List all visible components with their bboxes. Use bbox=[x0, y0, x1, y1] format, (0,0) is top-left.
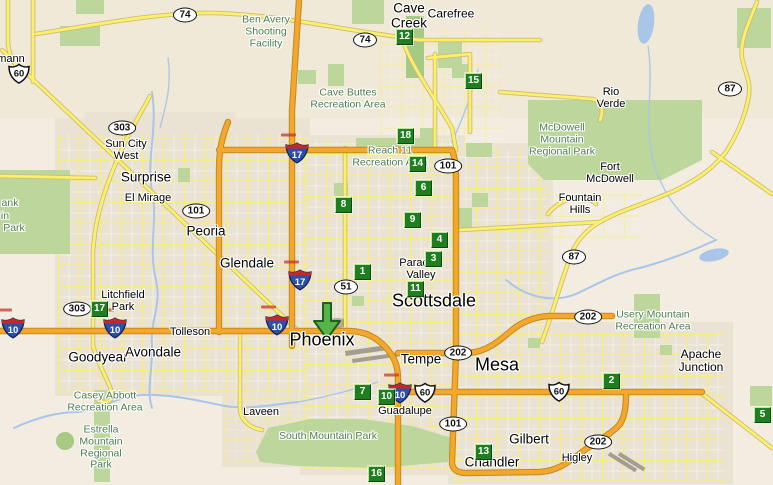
map-viewport[interactable]: mannSun City WestSurpriseEl MiragePeoria… bbox=[0, 0, 773, 485]
route-shield-101: 101 bbox=[439, 417, 467, 432]
park-area bbox=[466, 143, 492, 157]
base-map-graphics bbox=[0, 0, 773, 485]
park-area bbox=[750, 386, 772, 406]
river-agua-fria bbox=[150, 92, 158, 408]
map-marker-3[interactable]: 3 bbox=[425, 251, 442, 267]
interstate-shield-icon: 10 bbox=[264, 314, 290, 337]
route-shield-74: 74 bbox=[173, 8, 197, 23]
svg-text:60: 60 bbox=[420, 388, 431, 399]
park-area bbox=[528, 338, 540, 348]
map-marker-2[interactable]: 2 bbox=[603, 373, 620, 389]
selected-location-arrow bbox=[310, 301, 344, 341]
map-marker-17[interactable]: 17 bbox=[91, 301, 108, 317]
map-marker-6[interactable]: 6 bbox=[415, 180, 432, 196]
svg-text:10: 10 bbox=[272, 322, 283, 333]
interstate-shield-17: 17 bbox=[287, 269, 313, 292]
park-area bbox=[352, 296, 364, 306]
freeway-name-red-text bbox=[384, 374, 399, 377]
map-marker-7[interactable]: 7 bbox=[354, 384, 371, 400]
map-marker-8[interactable]: 8 bbox=[335, 197, 352, 213]
route-shield-303: 303 bbox=[108, 121, 136, 136]
map-marker-13[interactable]: 13 bbox=[475, 444, 492, 460]
interstate-shield-17: 17 bbox=[284, 142, 310, 165]
park-area bbox=[660, 345, 672, 355]
parks-layer bbox=[0, 0, 772, 482]
svg-text:10: 10 bbox=[8, 325, 19, 336]
map-marker-5[interactable]: 5 bbox=[754, 407, 771, 423]
park-estrella-blob bbox=[56, 432, 74, 450]
svg-text:10: 10 bbox=[110, 325, 121, 336]
river-gila bbox=[14, 395, 298, 428]
route-shield-101: 101 bbox=[182, 204, 210, 219]
route-shield-202: 202 bbox=[444, 346, 472, 361]
svg-text:60: 60 bbox=[14, 69, 25, 80]
yellow-roads-casing bbox=[0, 0, 772, 448]
park-cave-buttes bbox=[328, 64, 344, 86]
route-shield-87: 87 bbox=[718, 82, 742, 97]
river-new-river bbox=[160, 58, 169, 128]
route-shield-303: 303 bbox=[63, 302, 91, 317]
map-marker-16[interactable]: 16 bbox=[368, 466, 385, 482]
map-marker-9[interactable]: 9 bbox=[404, 212, 421, 228]
us-route-shield-60: 60 bbox=[547, 381, 573, 404]
park-area bbox=[76, 0, 104, 14]
us-route-shield-60: 60 bbox=[413, 382, 439, 405]
park-area bbox=[178, 168, 190, 182]
map-marker-18[interactable]: 18 bbox=[397, 128, 414, 144]
freeway-name-red-text bbox=[281, 134, 296, 137]
interstate-shield-icon: 10 bbox=[102, 317, 128, 340]
svg-text:17: 17 bbox=[292, 150, 303, 161]
map-marker-15[interactable]: 15 bbox=[465, 73, 482, 89]
river-salt bbox=[506, 240, 716, 298]
route-shield-74: 74 bbox=[353, 33, 377, 48]
interstate-shield-10: 10 bbox=[0, 317, 26, 340]
park-area bbox=[472, 193, 488, 207]
yellow-roads bbox=[0, 0, 772, 448]
interstate-shield-icon: 17 bbox=[287, 269, 313, 292]
svg-text:10: 10 bbox=[395, 390, 406, 401]
interstate-shield-10: 10 bbox=[102, 317, 128, 340]
svg-text:17: 17 bbox=[295, 277, 306, 288]
park-usery-mountain bbox=[634, 294, 660, 338]
park-south-mountain bbox=[256, 419, 452, 468]
route-shield-202: 202 bbox=[584, 435, 612, 450]
map-marker-4[interactable]: 4 bbox=[431, 232, 448, 248]
map-marker-1[interactable]: 1 bbox=[354, 264, 371, 280]
map-marker-12[interactable]: 12 bbox=[396, 29, 413, 45]
water-layer bbox=[14, 3, 730, 428]
svg-text:60: 60 bbox=[554, 387, 565, 398]
park-cave-buttes bbox=[298, 70, 316, 84]
us-route-shield-60: 60 bbox=[7, 63, 33, 86]
green-arrow-icon bbox=[310, 301, 344, 341]
lake-bartlett bbox=[635, 3, 656, 45]
interstate-shield-10: 10 bbox=[264, 314, 290, 337]
map-marker-10[interactable]: 10 bbox=[378, 389, 395, 405]
lake-saguaro bbox=[698, 246, 730, 264]
us-route-shield-icon: 60 bbox=[413, 382, 437, 404]
park-area bbox=[458, 208, 472, 230]
route-shield-87: 87 bbox=[562, 250, 586, 265]
freeway-name-red-text bbox=[0, 309, 12, 312]
us-route-shield-icon: 60 bbox=[547, 381, 571, 403]
route-shield-51: 51 bbox=[334, 280, 358, 295]
interstate-shield-icon: 17 bbox=[284, 142, 310, 165]
park-area bbox=[352, 0, 384, 24]
route-shield-101: 101 bbox=[434, 159, 462, 174]
park-white-tank bbox=[0, 170, 70, 254]
freeway-name-red-text bbox=[284, 261, 299, 264]
freeway-name-red-text bbox=[261, 306, 276, 309]
park-mcdowell-mountain bbox=[528, 100, 702, 180]
us-route-shield-icon: 60 bbox=[7, 63, 31, 85]
map-marker-11[interactable]: 11 bbox=[407, 281, 424, 297]
interstate-shield-icon: 10 bbox=[0, 317, 26, 340]
map-marker-14[interactable]: 14 bbox=[409, 156, 426, 172]
route-shield-202: 202 bbox=[574, 310, 602, 325]
